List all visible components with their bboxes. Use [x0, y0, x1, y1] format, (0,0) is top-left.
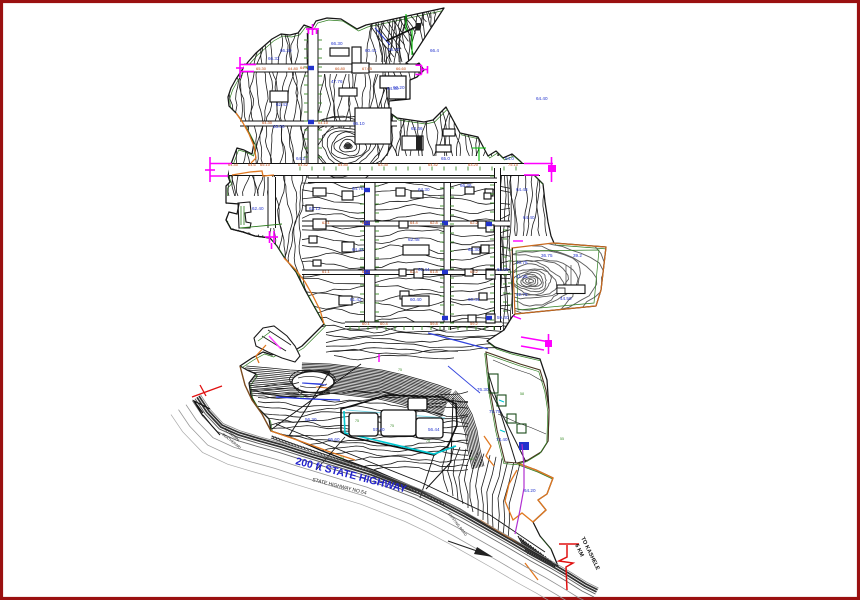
svg-text:59.2: 59.2 [470, 321, 479, 326]
svg-text:44.50: 44.50 [560, 296, 572, 301]
svg-text:65: 65 [300, 395, 304, 399]
svg-text:64.2: 64.2 [296, 156, 305, 161]
svg-text:63.12: 63.12 [309, 206, 321, 211]
svg-text:64.20: 64.20 [524, 488, 536, 493]
svg-text:75.75: 75.75 [489, 409, 501, 414]
svg-text:64.3: 64.3 [300, 65, 309, 70]
svg-text:64.0: 64.0 [505, 156, 514, 161]
svg-text:66.60: 66.60 [396, 66, 407, 71]
svg-text:61.8: 61.8 [430, 269, 439, 274]
svg-text:64.40: 64.40 [536, 96, 548, 101]
svg-text:60.44: 60.44 [468, 297, 480, 302]
svg-text:64.40: 64.40 [228, 162, 239, 167]
svg-text:63.1: 63.1 [322, 220, 331, 225]
svg-text:58: 58 [520, 392, 524, 396]
svg-text:55: 55 [560, 437, 564, 441]
svg-text:63.20: 63.20 [468, 162, 479, 167]
svg-text:64.80: 64.80 [288, 66, 299, 71]
svg-text:65.10: 65.10 [260, 162, 271, 167]
svg-text:61.43: 61.43 [350, 297, 362, 302]
svg-text:62.2: 62.2 [470, 220, 479, 225]
svg-text:64.42: 64.42 [298, 162, 309, 167]
svg-text:66.32: 66.32 [268, 56, 280, 61]
svg-text:75.10: 75.10 [508, 162, 519, 167]
svg-text:62: 62 [470, 457, 474, 461]
svg-text:66.30: 66.30 [280, 48, 292, 53]
svg-text:60.2: 60.2 [470, 269, 479, 274]
svg-text:56.44: 56.44 [428, 427, 440, 432]
svg-text:75: 75 [426, 439, 430, 443]
svg-text:39.2: 39.2 [573, 253, 582, 258]
svg-text:56.20: 56.20 [305, 417, 317, 422]
svg-text:60.4: 60.4 [380, 321, 389, 326]
svg-text:62.4: 62.4 [410, 269, 419, 274]
svg-text:66.10: 66.10 [353, 121, 365, 126]
svg-text:62.8: 62.8 [430, 220, 439, 225]
svg-text:65.0: 65.0 [441, 156, 450, 161]
svg-text:64.6: 64.6 [248, 162, 257, 167]
svg-text:64.76: 64.76 [352, 186, 364, 191]
svg-text:63.4: 63.4 [362, 220, 371, 225]
svg-text:36.75: 36.75 [541, 253, 553, 258]
svg-text:75: 75 [355, 419, 359, 423]
svg-text:60.40: 60.40 [410, 297, 422, 302]
svg-text:61.4: 61.4 [362, 269, 371, 274]
svg-text:74.40: 74.40 [496, 437, 508, 442]
svg-text:57.40: 57.40 [373, 427, 385, 432]
svg-text:62.43: 62.43 [276, 102, 288, 107]
svg-text:64.30: 64.30 [262, 120, 273, 125]
svg-text:64.30: 64.30 [387, 86, 399, 91]
svg-text:62.40: 62.40 [252, 206, 264, 211]
svg-text:42.75: 42.75 [516, 292, 528, 297]
svg-text:66.46: 66.46 [460, 183, 472, 188]
svg-text:60.1: 60.1 [362, 321, 371, 326]
svg-text:66.4: 66.4 [430, 48, 439, 53]
svg-text:95.60: 95.60 [328, 437, 340, 442]
svg-text:63.30: 63.30 [273, 124, 285, 129]
svg-text:66.30: 66.30 [331, 41, 343, 46]
svg-text:59.8: 59.8 [430, 321, 439, 326]
svg-text:64.46: 64.46 [411, 126, 423, 131]
svg-text:63.30: 63.30 [378, 162, 389, 167]
svg-text:47.76: 47.76 [331, 79, 343, 84]
svg-text:60.41: 60.41 [365, 48, 377, 53]
svg-text:64.40: 64.40 [523, 215, 535, 220]
svg-text:61.44: 61.44 [418, 267, 430, 272]
svg-text:64.10: 64.10 [318, 120, 329, 125]
svg-text:64.80: 64.80 [338, 162, 349, 167]
svg-text:67.05: 67.05 [362, 66, 373, 71]
svg-text:62.20: 62.20 [497, 267, 509, 272]
svg-text:62.48: 62.48 [408, 237, 420, 242]
svg-text:66.80: 66.80 [335, 66, 346, 71]
svg-text:64.4: 64.4 [410, 220, 419, 225]
svg-text:64.42: 64.42 [428, 162, 439, 167]
svg-text:76.30: 76.30 [477, 387, 489, 392]
svg-text:41.25: 41.25 [516, 274, 528, 279]
svg-text:65.30: 65.30 [256, 66, 267, 71]
svg-text:40.75: 40.75 [516, 260, 528, 265]
svg-text:63.30: 63.30 [468, 247, 480, 252]
svg-text:64.43: 64.43 [516, 187, 528, 192]
svg-text:75: 75 [398, 368, 402, 372]
svg-text:66.20: 66.20 [388, 47, 400, 52]
svg-text:61.1: 61.1 [322, 269, 331, 274]
svg-text:59.40: 59.40 [497, 315, 509, 320]
svg-text:75: 75 [390, 424, 394, 428]
svg-text:64.30: 64.30 [418, 187, 430, 192]
svg-text:64.42: 64.42 [352, 247, 364, 252]
